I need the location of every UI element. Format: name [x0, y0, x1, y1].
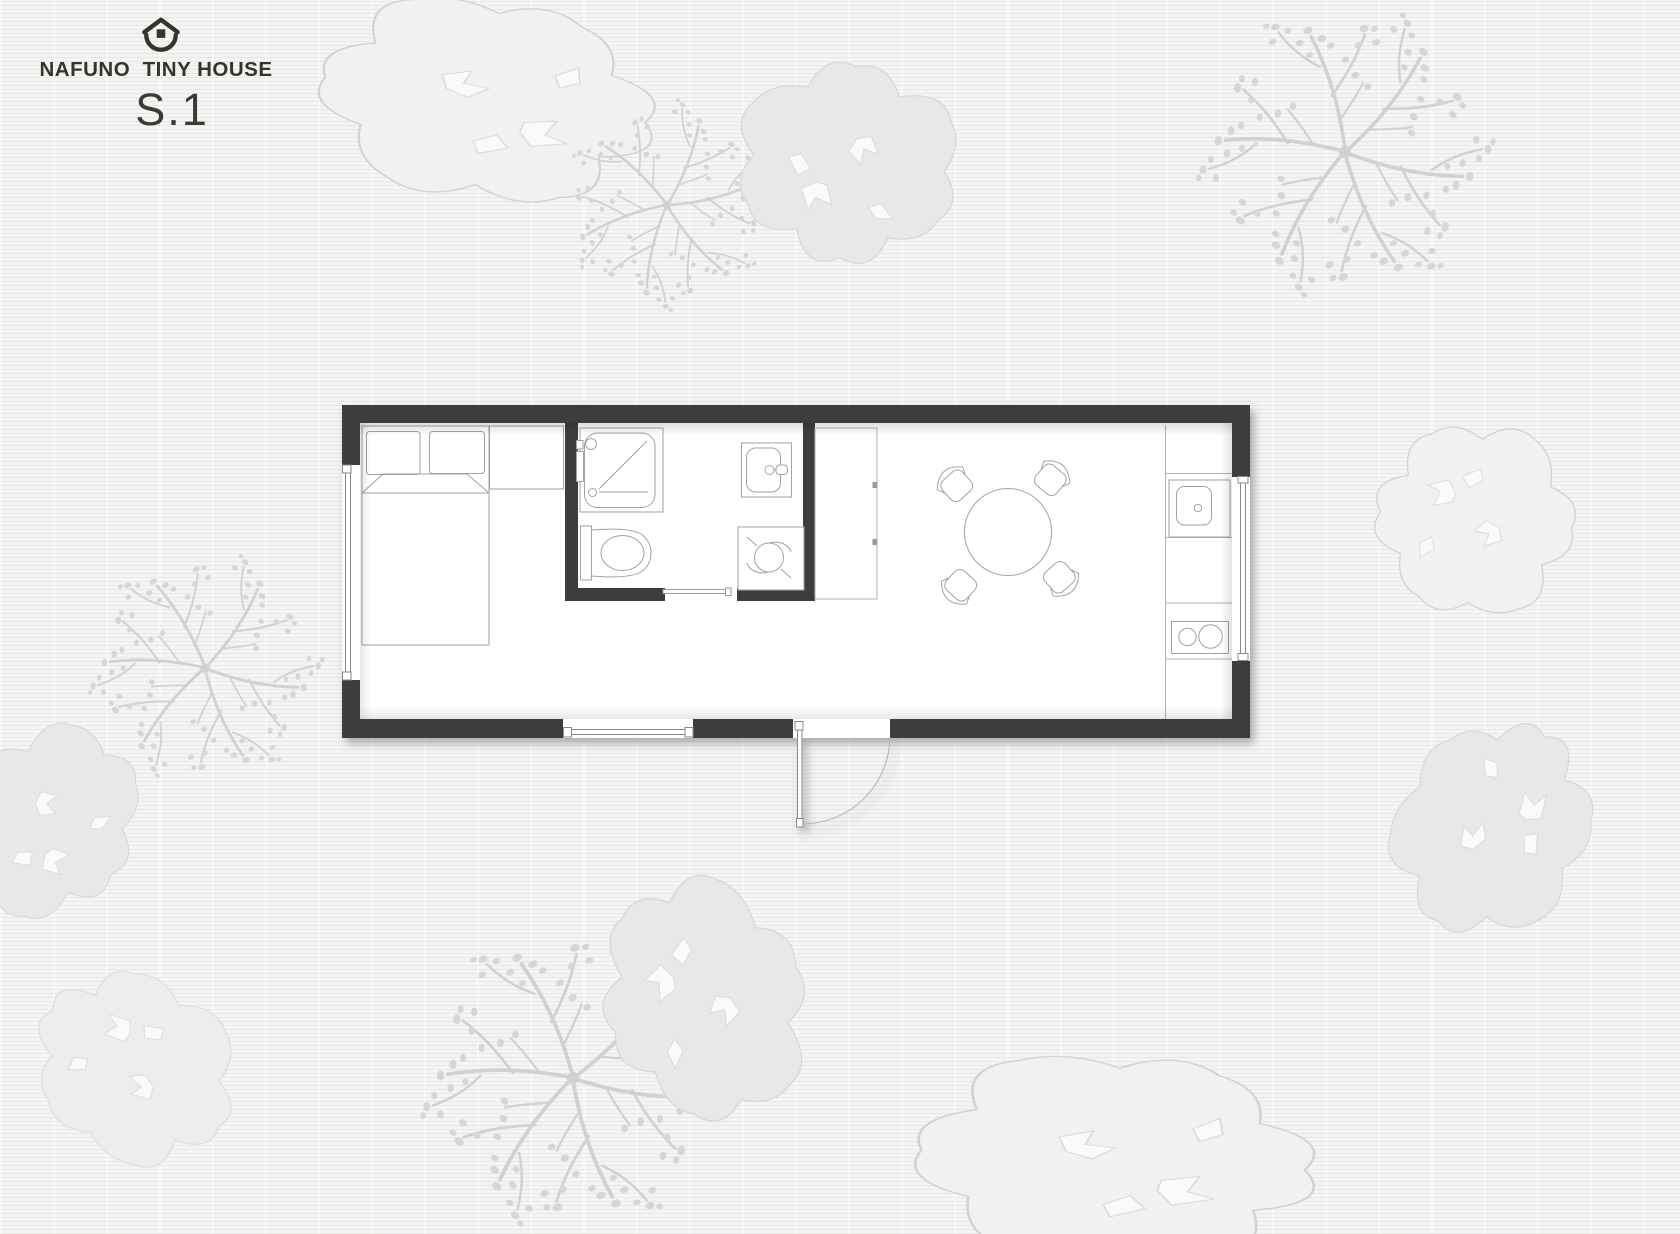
bed — [362, 426, 489, 645]
tree-icon — [1367, 418, 1582, 621]
toilet — [581, 526, 652, 580]
floorplan-page: NAFUNO TINY HOUSE S.1 — [0, 0, 1680, 1234]
dining-table — [965, 489, 1052, 576]
faucet — [776, 465, 788, 475]
shower — [577, 428, 664, 512]
tree-icon — [570, 853, 839, 1145]
tree-icon — [730, 54, 964, 272]
tree-icon — [307, 0, 667, 222]
floor-plan-canvas — [0, 0, 1680, 1234]
tree-icon — [1152, 0, 1545, 347]
wardrobe — [815, 428, 877, 599]
house-logo-icon — [138, 16, 184, 54]
shower-head — [586, 439, 597, 450]
shower-valve-panel — [577, 452, 584, 482]
kitchen-sink — [1169, 480, 1230, 537]
door-leaf — [798, 730, 803, 820]
brand-model: S.1 — [36, 84, 276, 136]
tree-icon — [1357, 686, 1629, 970]
brand-name: NAFUNO TINY HOUSE — [36, 58, 276, 82]
brand-header: NAFUNO TINY HOUSE S.1 — [36, 16, 276, 136]
tree-icon — [911, 1047, 1320, 1234]
washing-machine — [738, 527, 804, 590]
bathroom-sink — [742, 443, 792, 497]
floor-plan — [342, 405, 1250, 827]
cooktop — [1172, 622, 1229, 654]
tree-icon — [0, 935, 272, 1200]
